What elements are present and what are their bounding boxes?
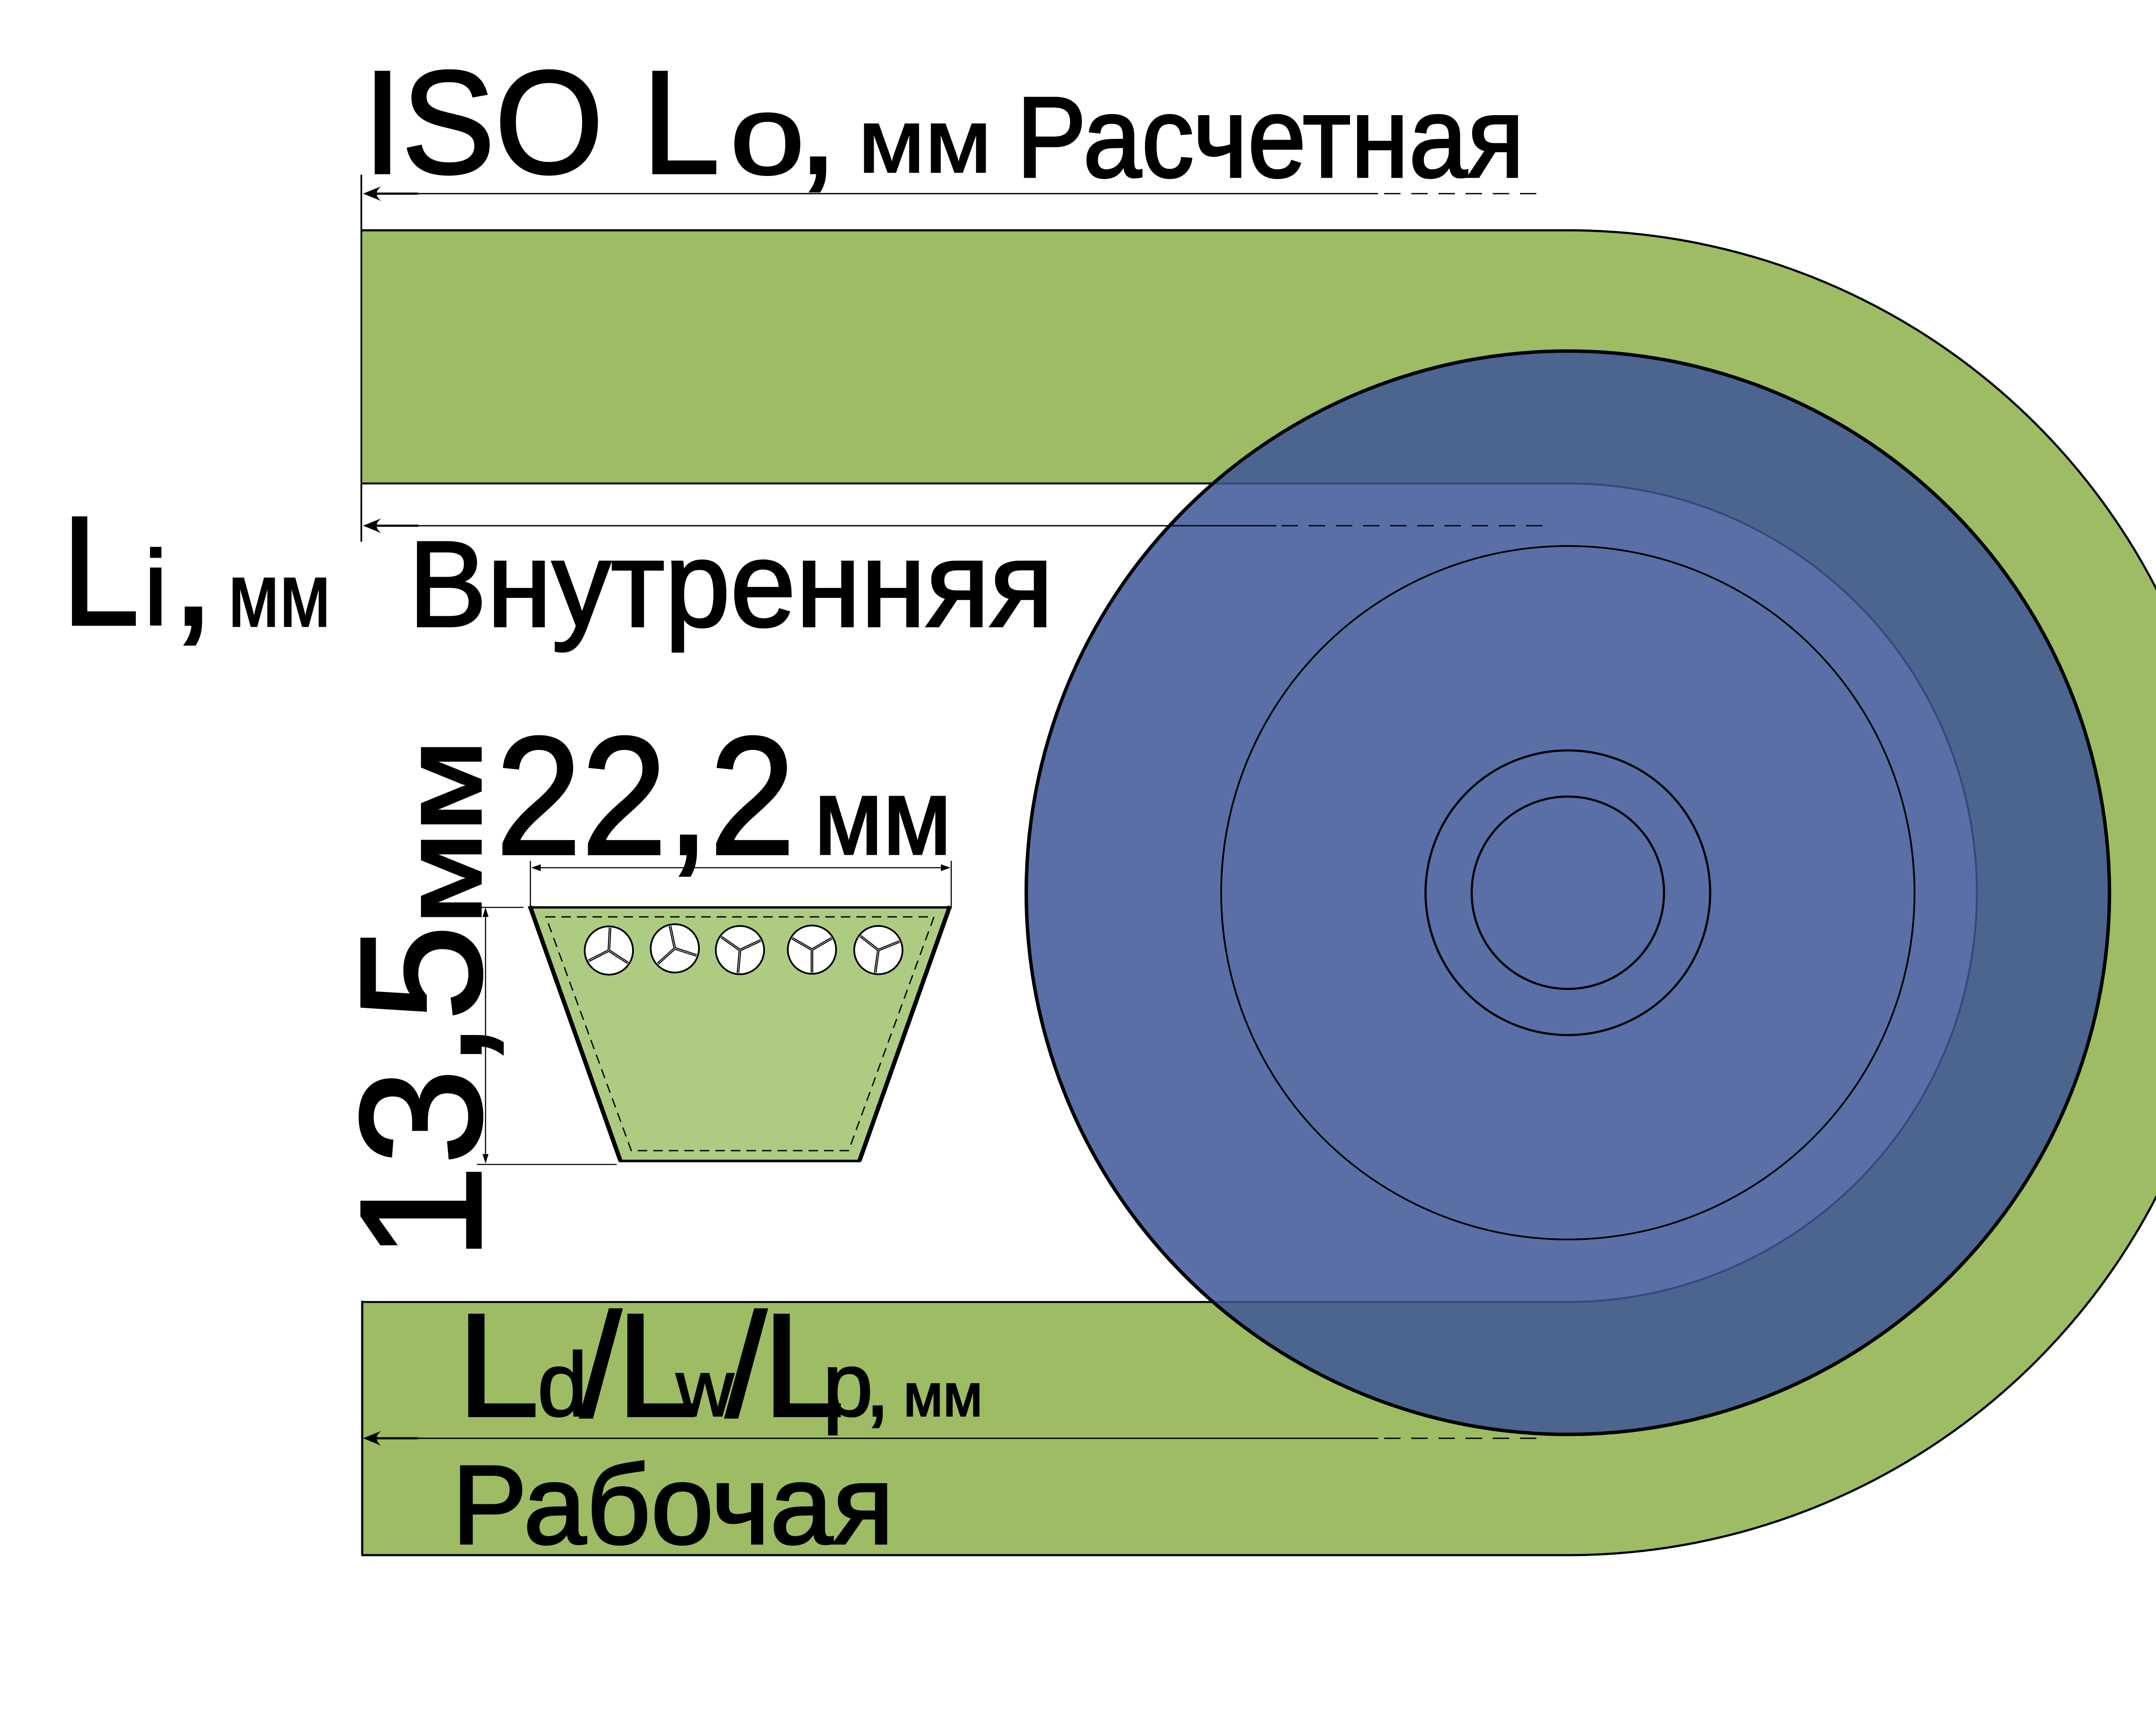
svg-text:22,2: 22,2 xyxy=(496,702,795,890)
svg-text:,: , xyxy=(865,1334,890,1435)
svg-text:ISO L: ISO L xyxy=(363,41,720,204)
svg-text:мм: мм xyxy=(858,90,992,191)
svg-text:,: , xyxy=(798,44,838,203)
svg-text:Рабочая: Рабочая xyxy=(452,1443,894,1568)
svg-text:Внутренняя: Внутренняя xyxy=(408,516,1053,653)
svg-text:L: L xyxy=(458,1283,539,1447)
svg-text:/: / xyxy=(580,1283,622,1447)
svg-text:мм: мм xyxy=(903,1361,983,1429)
svg-text:мм: мм xyxy=(228,544,331,646)
svg-text:/: / xyxy=(726,1283,767,1447)
svg-text:Расчетная: Расчетная xyxy=(1016,73,1524,201)
svg-text:мм: мм xyxy=(814,756,952,877)
svg-text:,: , xyxy=(172,484,215,658)
svg-text:i: i xyxy=(144,529,167,647)
svg-text:o: o xyxy=(730,73,805,198)
svg-text:L: L xyxy=(62,484,139,658)
